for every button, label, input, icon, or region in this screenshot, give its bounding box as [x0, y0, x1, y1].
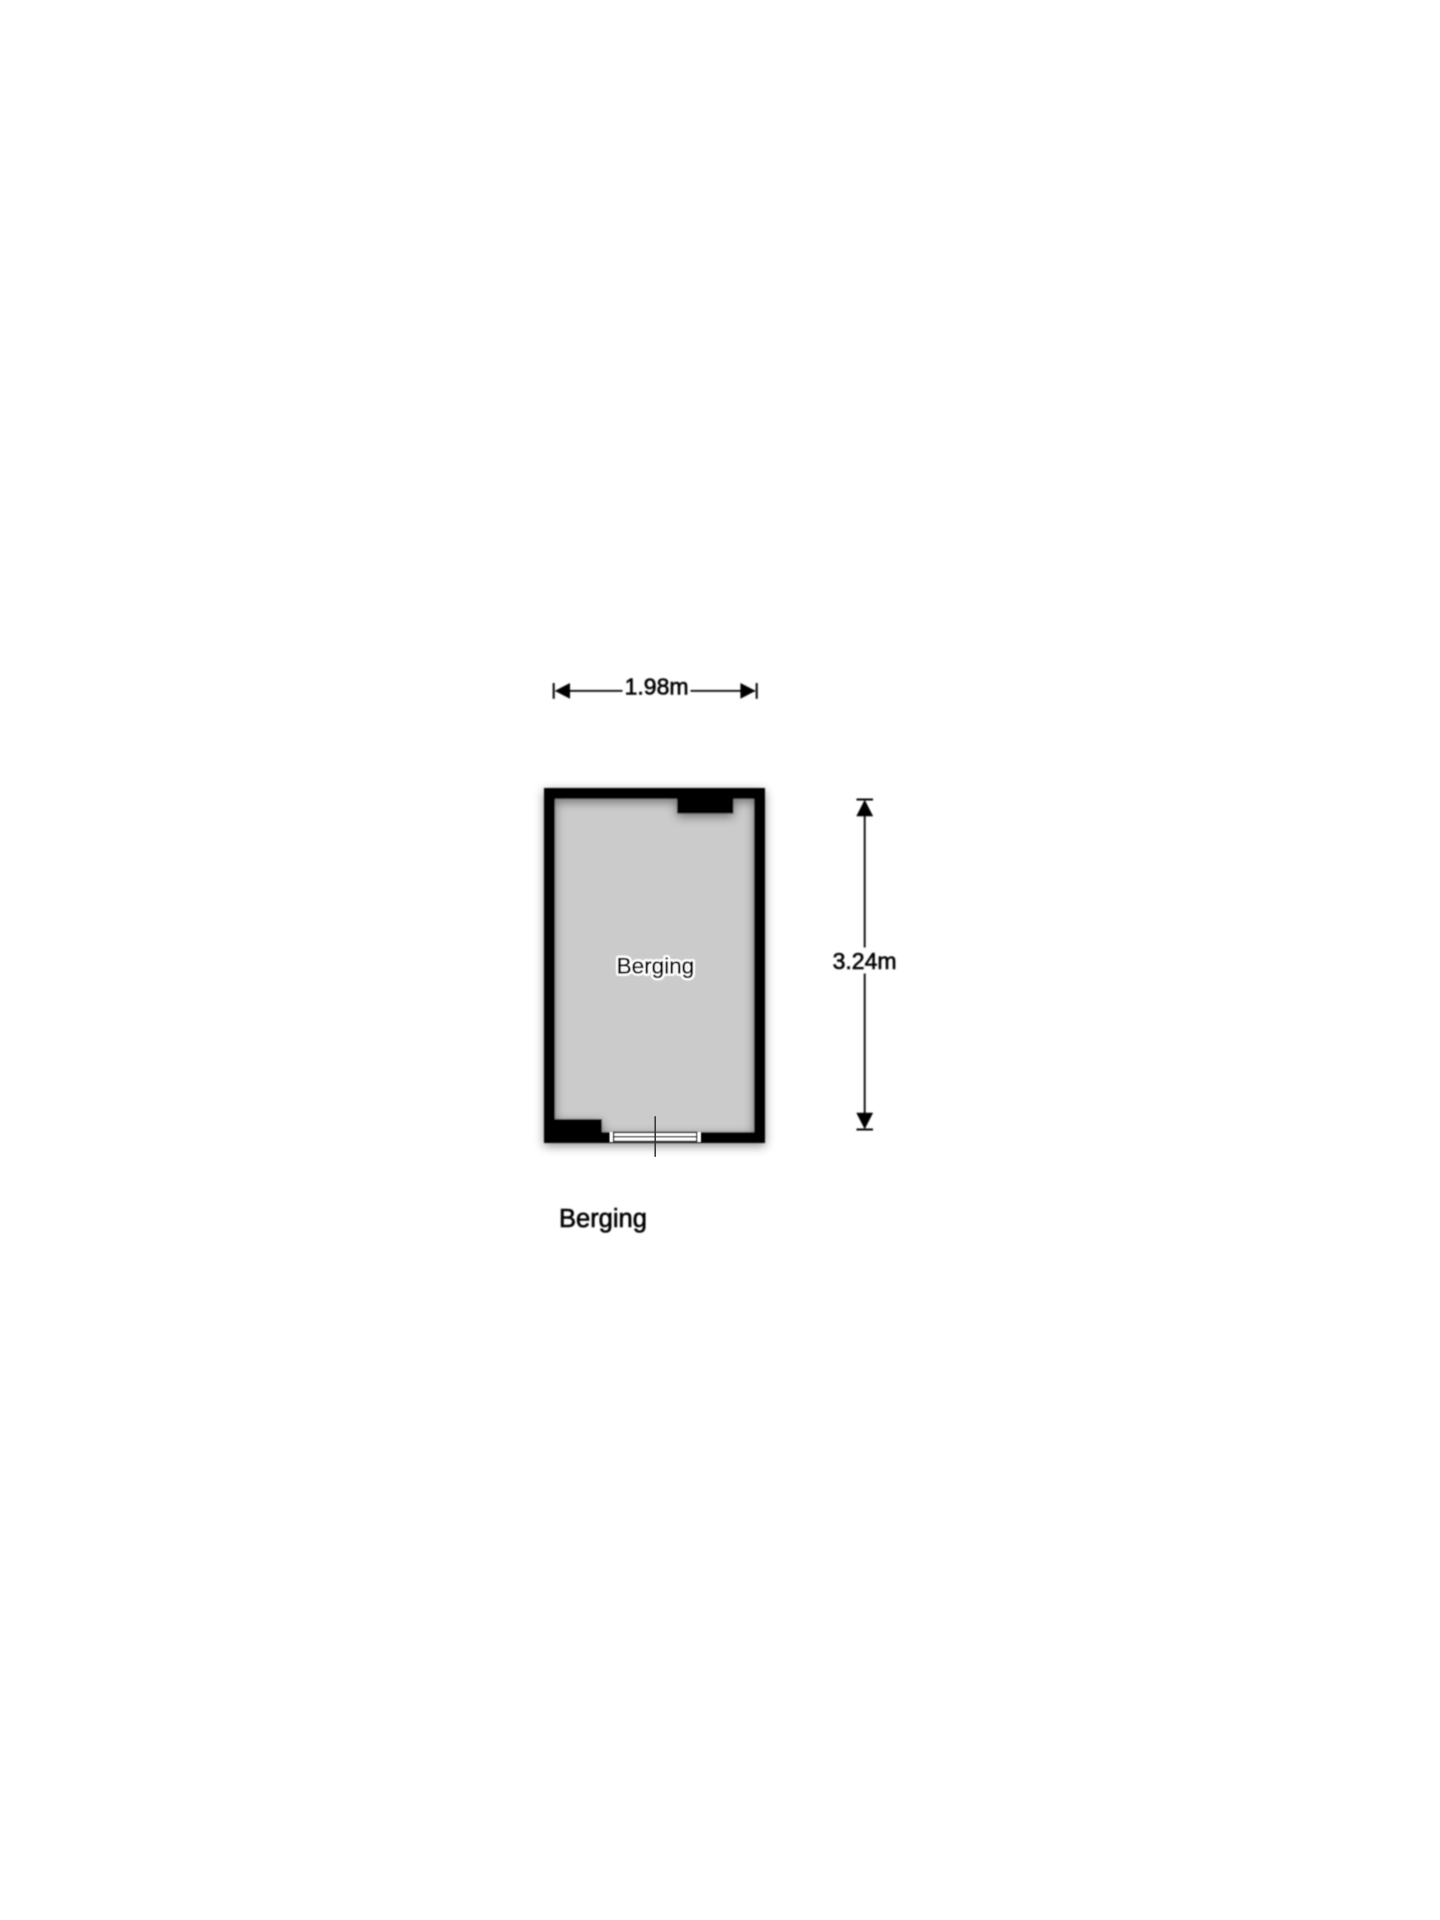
svg-text:1.98m: 1.98m	[625, 674, 689, 700]
svg-text:Berging: Berging	[559, 1205, 647, 1233]
svg-text:Berging: Berging	[617, 953, 695, 978]
svg-text:3.24m: 3.24m	[833, 948, 897, 974]
